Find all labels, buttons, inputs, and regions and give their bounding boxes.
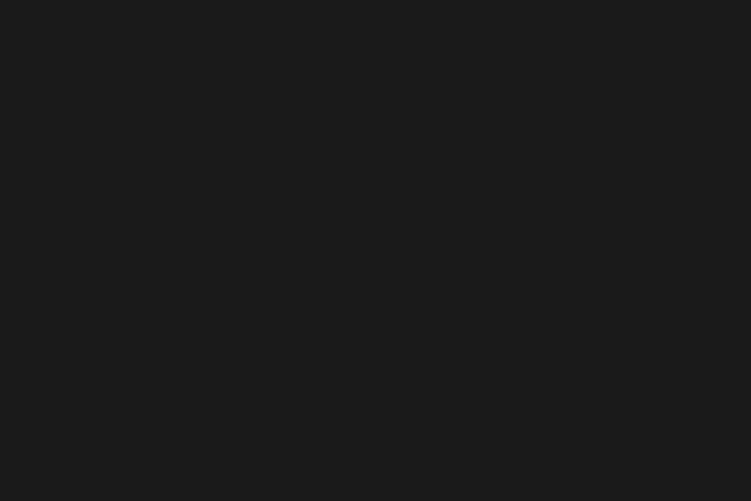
- aerial-development-rendering: [0, 0, 751, 501]
- scene-canvas: [0, 0, 751, 501]
